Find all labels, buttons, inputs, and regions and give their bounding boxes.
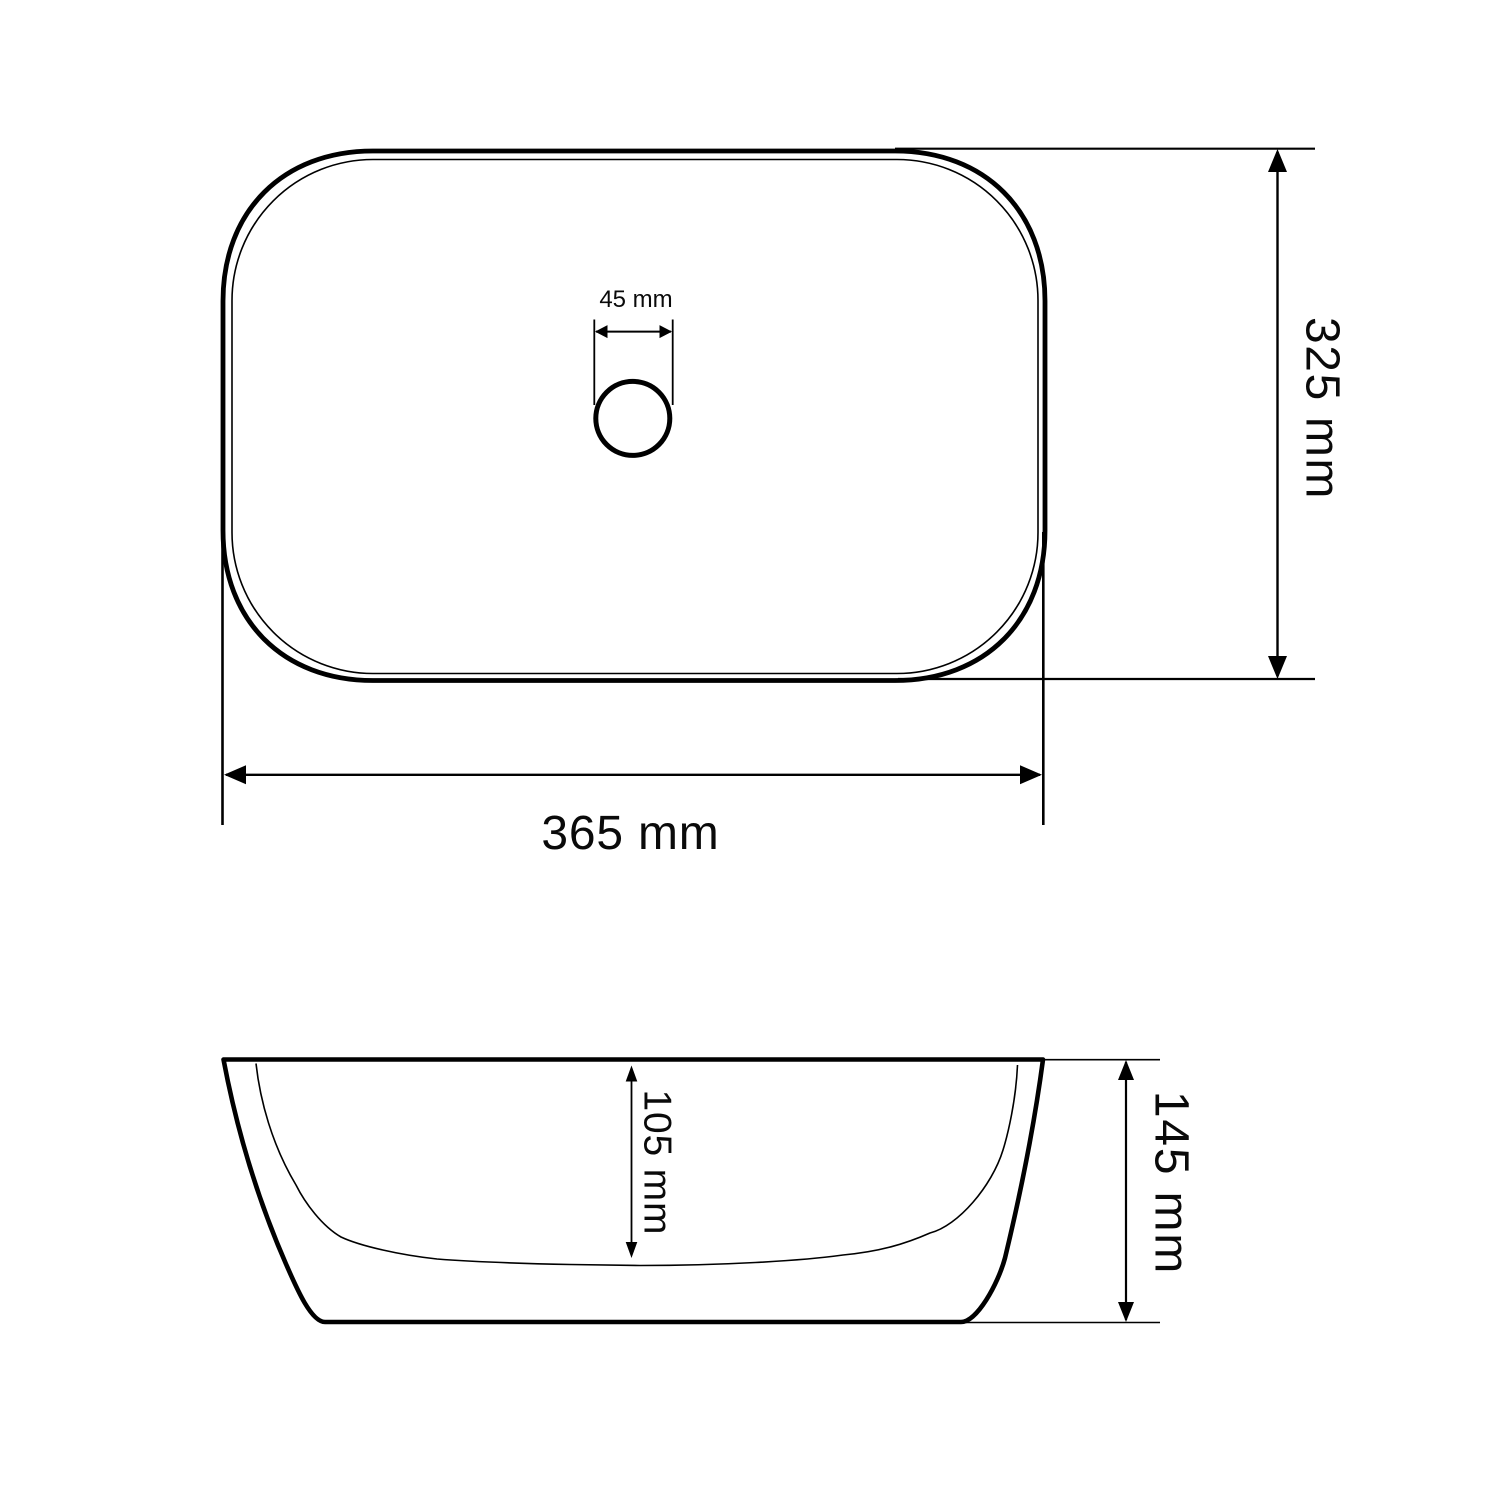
svg-text:325 mm: 325 mm: [1295, 317, 1348, 500]
svg-text:365 mm: 365 mm: [541, 807, 719, 860]
svg-text:45 mm: 45 mm: [599, 286, 672, 313]
svg-text:145 mm: 145 mm: [1144, 1091, 1197, 1275]
svg-text:105 mm: 105 mm: [636, 1090, 679, 1236]
